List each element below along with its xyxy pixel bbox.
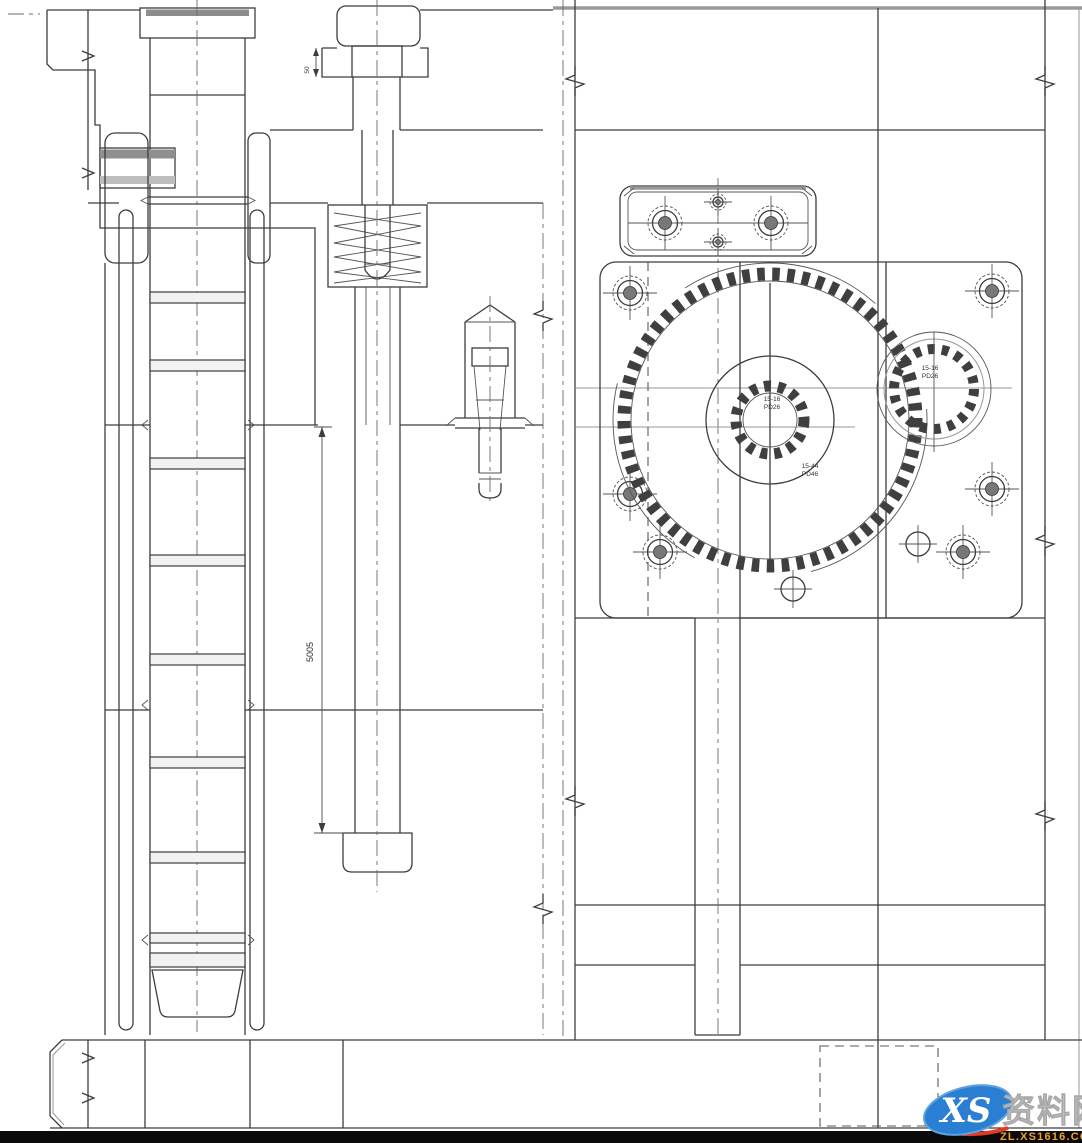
ring-gear-label-line2: PD46	[802, 471, 819, 478]
watermark-logo: XS 资料网 ZL.XS1616.COM	[919, 1077, 1082, 1143]
shaft-cap	[140, 8, 255, 38]
bolt-dim-text: 50	[304, 66, 311, 74]
watermark-site-url: ZL.XS1616.COM	[1000, 1131, 1082, 1143]
shaft-length-dimension: 5005	[305, 427, 345, 833]
gear-housing-plate: 15-16 PD26 15-44 PD46 15-16 PD26	[600, 186, 1022, 618]
bolt-head-dimension: 50	[304, 48, 319, 77]
watermark-xs-text: XS	[939, 1091, 992, 1131]
spring-loaded-bolt: 50 50	[304, 0, 428, 892]
right-section-view	[420, 0, 1082, 1128]
shaft-dim-text: 5005	[305, 642, 315, 662]
side-key-pin	[100, 148, 175, 188]
sun-gear-label-line2: PD26	[764, 404, 781, 411]
bottom-border-bar	[0, 1131, 1082, 1143]
rod-nut	[343, 833, 412, 872]
spring-pocket	[328, 205, 427, 287]
hidden-pocket	[820, 1046, 938, 1126]
watermark-site-name: 资料网	[1002, 1092, 1082, 1129]
shaft-rungs	[150, 292, 245, 967]
plunger-pin-detail	[446, 296, 534, 505]
sun-gear-label-line1: 15-16	[764, 396, 781, 403]
guide-sleeves	[105, 210, 264, 1035]
idler-gear-label-line2: PD26	[922, 373, 939, 380]
idler-gear-label-line1: 15-16	[922, 365, 939, 372]
ring-gear-label-line1: 15-44	[802, 463, 819, 470]
shaft-tip	[152, 970, 243, 1017]
tie-rod	[343, 287, 412, 872]
ejector-tube	[695, 178, 740, 1038]
left-section-view	[8, 0, 315, 1035]
cad-drawing-canvas: 15-16 PD26 15-44 PD46 15-16 PD26	[0, 0, 1082, 1143]
cad-drawing-page: 15-16 PD26 15-44 PD46 15-16 PD26	[0, 0, 1082, 1143]
